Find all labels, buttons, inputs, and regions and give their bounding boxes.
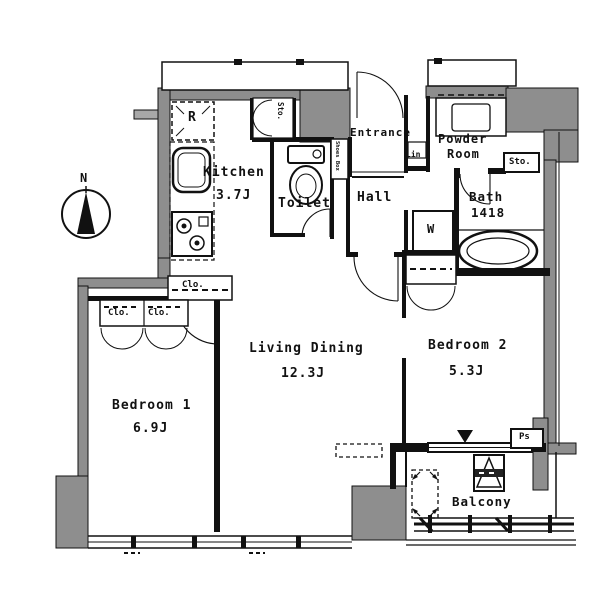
bedroom1-area: 6.9J — [133, 421, 168, 436]
balcony-label: Balcony — [452, 494, 512, 509]
entrance-label: Entrance — [350, 126, 411, 139]
window-tick — [296, 59, 304, 65]
bifold-door — [407, 286, 431, 310]
column-top-right-lower — [544, 130, 578, 162]
window-frame-tick — [296, 536, 301, 548]
wall-jog-horiz — [78, 278, 172, 288]
bathtub-icon — [459, 231, 537, 271]
bedroom2-label: Bedroom 2 — [428, 338, 507, 353]
window-tick — [434, 58, 442, 64]
window-band-top-left — [162, 62, 348, 90]
entrance-step — [352, 172, 404, 177]
bifold-door — [166, 328, 187, 349]
kitchen-counter — [170, 142, 214, 260]
bedroom1-label: Bedroom 1 — [112, 398, 191, 413]
powder-room-label-line2: Room — [447, 147, 480, 161]
kitchen-sink-inner — [178, 153, 205, 187]
ac-indoor-unit-space — [336, 444, 382, 457]
toilet-bowl-inner — [296, 174, 316, 198]
wall-powder-left — [426, 96, 430, 172]
window-frame-tick — [192, 536, 197, 548]
bifold-door — [122, 328, 143, 349]
window-frame-tick — [241, 536, 246, 548]
kitchen-storage-box — [253, 98, 293, 138]
wall-toilet-bottom — [273, 233, 305, 237]
kitchen-label: Kitchen — [203, 165, 265, 180]
kitchen-storage-label: Sto. — [276, 102, 285, 120]
wall-toilet-left — [270, 137, 274, 237]
entrance-door-arc — [357, 72, 403, 118]
bath-size: 1418 — [471, 205, 505, 220]
toilet-flush — [313, 150, 321, 158]
floor-plan: Kitchen 3.7J Toilet Entrance Hall Powder… — [0, 0, 600, 600]
column-top-right — [506, 88, 578, 132]
bedroom1-closet-left-label: Clo. — [108, 308, 130, 318]
vanity-basin — [452, 104, 490, 131]
column-bottom-left — [56, 476, 88, 548]
bath-label: Bath — [469, 189, 503, 204]
wall-hall-right — [404, 210, 408, 256]
wall-bedroom1-divider — [214, 300, 220, 532]
bath-fixtures — [459, 230, 544, 271]
kitchen-fixtures — [170, 102, 214, 260]
stove-panel — [199, 217, 208, 226]
window-tick — [234, 59, 242, 65]
refrigerator-label: R — [188, 110, 196, 125]
compass — [62, 186, 110, 238]
wall-kitchen-left — [158, 88, 170, 264]
bath-storage-label: Sto. — [509, 157, 531, 167]
pipe-space-label: Ps — [519, 432, 530, 442]
vanity — [436, 95, 506, 136]
column-bottom-center — [352, 486, 406, 540]
hall-label: Hall — [357, 190, 392, 205]
bifold-door — [101, 328, 122, 349]
stove-icon — [172, 212, 212, 256]
wall-bedroom2-left-lower — [402, 362, 406, 444]
living-dining-label: Living Dining — [249, 341, 364, 356]
bifold-door — [145, 328, 166, 349]
wall-top-powder — [426, 86, 508, 98]
wall-hall-left — [346, 172, 350, 256]
living-dining-area: 12.3J — [281, 366, 325, 381]
wall — [346, 252, 358, 257]
floor-plan-drawing — [0, 0, 600, 600]
window-frame-tick — [131, 536, 136, 548]
marker-triangle — [457, 430, 473, 443]
linen-label: Lin — [406, 150, 420, 159]
exterior-windows — [162, 58, 516, 90]
wall — [406, 166, 428, 171]
bedroom1-closet-right-label: Clo. — [148, 308, 170, 318]
toilet-door-arc — [302, 209, 330, 237]
bedroom2-door-jamb — [402, 358, 406, 362]
north-arrow-icon — [77, 192, 95, 234]
bathtub-inner — [467, 238, 529, 264]
window-bottom — [88, 536, 352, 553]
column-entrance — [300, 88, 350, 142]
toilet-tank — [288, 146, 324, 163]
shoes-box-label: Shoes Box — [334, 141, 340, 171]
living-closet-label: Clo. — [182, 280, 204, 290]
north-label: N — [80, 171, 87, 185]
powder-room-label-line1: Powder — [438, 132, 487, 146]
washer-label: W — [427, 222, 434, 236]
bedroom2-area: 5.3J — [449, 364, 484, 379]
column-balcony-arm — [548, 443, 576, 454]
wall-stub-left — [134, 110, 158, 119]
wall-right — [544, 160, 556, 452]
kitchen-area: 3.7J — [216, 188, 251, 203]
bedroom2-door-jamb — [402, 314, 406, 318]
hall-living-door-arc — [354, 257, 398, 301]
toilet-label: Toilet — [278, 196, 331, 211]
bifold-door — [431, 286, 455, 310]
wall-ld-balcony — [390, 443, 396, 489]
